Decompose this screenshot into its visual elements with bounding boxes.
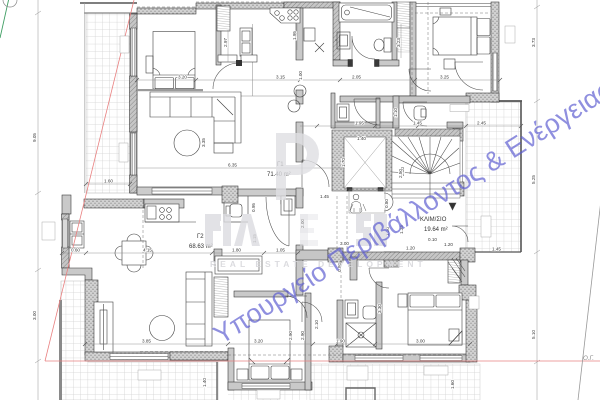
svg-text:3.30: 3.30 <box>377 304 382 313</box>
svg-text:1.05: 1.05 <box>276 248 285 253</box>
svg-text:1.20: 1.20 <box>406 246 415 251</box>
svg-text:2.97: 2.97 <box>223 38 228 47</box>
svg-text:1.80: 1.80 <box>232 248 241 253</box>
svg-text:1.10: 1.10 <box>393 108 398 117</box>
svg-text:3.00: 3.00 <box>416 339 425 344</box>
svg-text:1.70: 1.70 <box>341 158 346 167</box>
svg-text:3.35: 3.35 <box>201 138 206 147</box>
svg-text:3.00: 3.00 <box>32 311 37 320</box>
svg-text:3.20: 3.20 <box>254 339 263 344</box>
svg-text:3.25: 3.25 <box>440 75 449 80</box>
svg-text:9.05: 9.05 <box>32 133 37 142</box>
svg-text:2.90: 2.90 <box>300 331 305 340</box>
svg-text:5.25: 5.25 <box>531 175 536 184</box>
svg-text:3.15: 3.15 <box>276 75 285 80</box>
svg-text:0.95: 0.95 <box>251 203 256 212</box>
svg-text:0.80: 0.80 <box>384 199 389 208</box>
svg-text:1.95: 1.95 <box>355 121 364 126</box>
svg-text:1.95: 1.95 <box>292 31 297 40</box>
svg-text:2.45: 2.45 <box>477 121 486 126</box>
svg-text:3.23: 3.23 <box>396 38 401 47</box>
svg-text:1.45: 1.45 <box>320 194 329 199</box>
svg-text:1.45: 1.45 <box>492 247 501 252</box>
svg-text:2.05: 2.05 <box>352 75 361 80</box>
svg-text:19.64 m²: 19.64 m² <box>424 227 448 233</box>
svg-text:1.60: 1.60 <box>104 179 113 184</box>
svg-text:5.10: 5.10 <box>531 330 536 339</box>
svg-text:1.00: 1.00 <box>298 71 303 80</box>
svg-text:2.50: 2.50 <box>398 169 403 178</box>
svg-text:1.40: 1.40 <box>357 136 366 141</box>
svg-text:1.45: 1.45 <box>413 121 422 126</box>
svg-text:3.73: 3.73 <box>531 38 536 47</box>
svg-text:1.40: 1.40 <box>202 378 207 387</box>
svg-text:2.10: 2.10 <box>314 320 319 329</box>
svg-text:3.20: 3.20 <box>178 75 187 80</box>
svg-text:Γ2: Γ2 <box>197 234 204 240</box>
svg-text:1.20: 1.20 <box>444 242 453 247</box>
svg-text:3.85: 3.85 <box>142 339 151 344</box>
svg-text:2.90: 2.90 <box>288 331 293 340</box>
svg-text:1.60: 1.60 <box>450 380 455 389</box>
svg-text:4.15: 4.15 <box>143 248 152 253</box>
svg-text:0.60: 0.60 <box>71 248 80 253</box>
svg-text:Ο.Γ.: Ο.Γ. <box>583 355 594 362</box>
svg-text:1.90: 1.90 <box>336 339 345 344</box>
svg-text:6.35: 6.35 <box>228 163 237 168</box>
svg-text:0.10: 0.10 <box>428 237 437 242</box>
